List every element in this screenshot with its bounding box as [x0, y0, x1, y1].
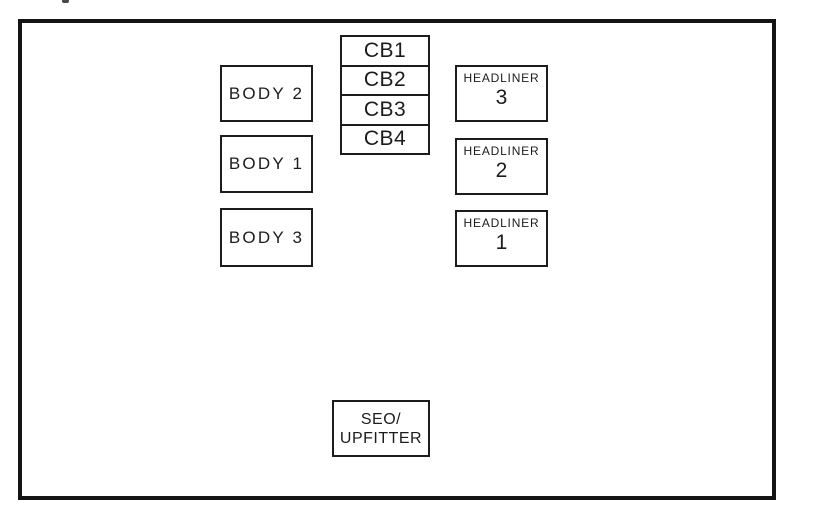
circuit-breaker-cb4: CB4	[342, 124, 428, 154]
fuse-box-headliner-1-number: 1	[496, 230, 508, 256]
fuse-box-seo-upfitter-line1: SEO/	[361, 410, 401, 429]
fuse-box-body-2: BODY 2	[220, 65, 313, 122]
fuse-box-headliner-3: HEADLINER 3	[455, 65, 548, 122]
circuit-breaker-cb3: CB3	[342, 94, 428, 124]
circuit-breaker-cb1-label: CB1	[364, 39, 406, 63]
circuit-breaker-cb2: CB2	[342, 65, 428, 95]
circuit-breaker-cb3-label: CB3	[364, 98, 406, 122]
fuse-box-seo-upfitter-line2: UPFITTER	[340, 429, 422, 448]
fuse-box-headliner-2: HEADLINER 2	[455, 138, 548, 195]
fuse-box-headliner-2-number: 2	[496, 158, 508, 184]
fuse-box-body-1: BODY 1	[220, 135, 313, 193]
fuse-box-body-3: BODY 3	[220, 208, 313, 267]
circuit-breaker-cb1: CB1	[342, 37, 428, 65]
cropped-text-artifact	[62, 0, 69, 3]
fuse-box-headliner-1-label: HEADLINER	[464, 216, 540, 230]
fuse-box-body-2-label: BODY 2	[229, 84, 304, 104]
fuse-panel-diagram-page: { "diagram": { "colors": { "line": "#1c1…	[0, 0, 822, 524]
circuit-breaker-stack: CB1 CB2 CB3 CB4	[340, 35, 430, 155]
circuit-breaker-cb2-label: CB2	[364, 68, 406, 92]
circuit-breaker-cb4-label: CB4	[364, 127, 406, 151]
fuse-box-headliner-2-label: HEADLINER	[464, 144, 540, 158]
fuse-box-headliner-3-number: 3	[496, 85, 508, 111]
fuse-box-body-1-label: BODY 1	[229, 154, 304, 174]
fuse-box-body-3-label: BODY 3	[229, 228, 304, 248]
fuse-box-headliner-3-label: HEADLINER	[464, 71, 540, 85]
fuse-box-headliner-1: HEADLINER 1	[455, 210, 548, 267]
fuse-box-seo-upfitter: SEO/ UPFITTER	[332, 400, 430, 457]
